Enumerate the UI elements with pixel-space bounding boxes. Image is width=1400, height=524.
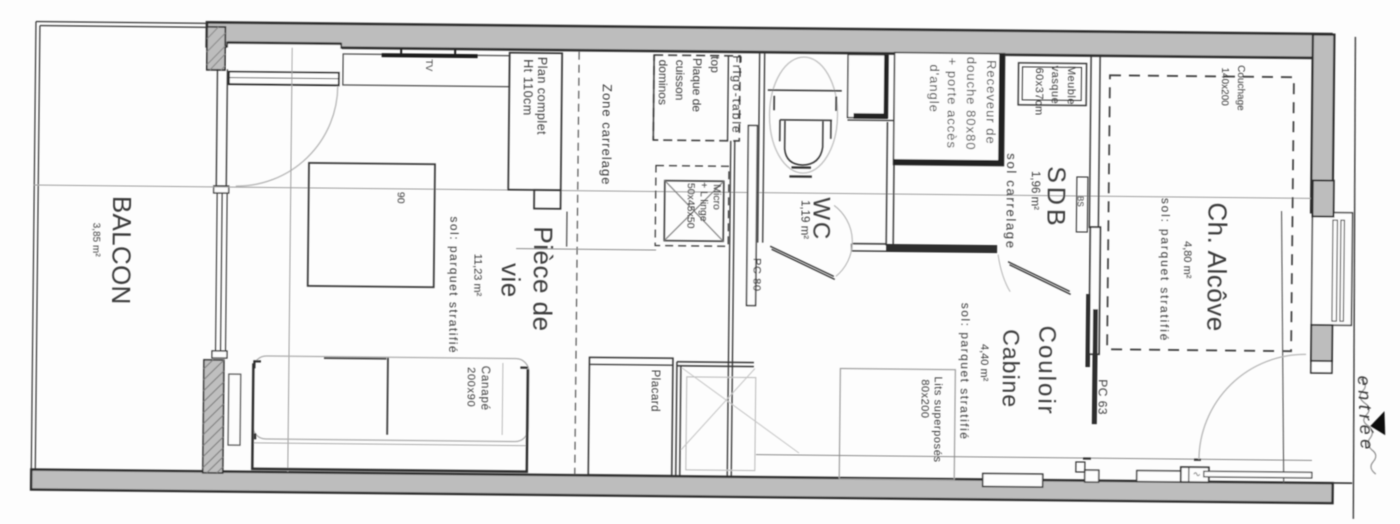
svg-text:+ L linge: + L linge — [697, 182, 709, 222]
svg-text:top: top — [708, 56, 722, 73]
svg-text:vasque: vasque — [1049, 66, 1061, 105]
svg-text:Plan complet: Plan complet — [534, 57, 549, 135]
svg-text:Cabine: Cabine — [997, 329, 1024, 408]
svg-text:sol: parquet stratifié: sol: parquet stratifié — [957, 303, 972, 441]
svg-text:Zone carrelage: Zone carrelage — [599, 84, 615, 186]
svg-text:Couchage: Couchage — [1235, 65, 1246, 111]
svg-text:SDB: SDB — [1041, 166, 1070, 230]
svg-text:+ porte accès: + porte accès — [944, 58, 960, 150]
svg-text:Ch. Alcôve: Ch. Alcôve — [1201, 202, 1232, 332]
svg-text:dominos: dominos — [656, 60, 670, 106]
svg-text:80x200: 80x200 — [918, 379, 930, 418]
svg-text:50x45x50: 50x45x50 — [684, 183, 696, 229]
svg-text:90: 90 — [395, 192, 407, 204]
svg-text:sol: parquet stratifié: sol: parquet stratifié — [1157, 198, 1173, 342]
svg-text:cuisson: cuisson — [673, 60, 687, 101]
svg-text:3,85 m²: 3,85 m² — [90, 223, 101, 258]
svg-text:4,40 m²: 4,40 m² — [978, 344, 990, 382]
svg-text:sol carrelage: sol carrelage — [1003, 153, 1019, 250]
svg-text:60x37cm: 60x37cm — [1033, 67, 1046, 115]
svg-text:sol: parquet stratifié: sol: parquet stratifié — [446, 216, 461, 354]
svg-text:Canapé: Canapé — [478, 366, 490, 411]
svg-text:Lits superposés: Lits superposés — [931, 376, 944, 462]
svg-text:200x90: 200x90 — [464, 367, 476, 407]
svg-text:douche 80x80: douche 80x80 — [963, 57, 979, 151]
svg-text:Ht 110cm: Ht 110cm — [521, 59, 536, 116]
svg-text:Placard: Placard — [648, 369, 660, 412]
svg-text:BALCON: BALCON — [106, 196, 137, 305]
svg-text:Receveur de: Receveur de — [983, 60, 999, 145]
svg-text:Micro: Micro — [711, 184, 723, 210]
svg-text:Frigo-table: Frigo-table — [729, 55, 744, 135]
svg-text:Couloir: Couloir — [1032, 325, 1060, 415]
svg-text:BS: BS — [1076, 196, 1085, 207]
svg-text:Pièce de: Pièce de — [527, 226, 558, 331]
svg-text:PC 63: PC 63 — [1095, 379, 1109, 415]
svg-text:11,23 m²: 11,23 m² — [471, 254, 483, 297]
svg-text:vie: vie — [496, 263, 526, 298]
svg-text:Meuble: Meuble — [1065, 66, 1077, 105]
svg-text:d'angle: d'angle — [927, 64, 943, 113]
svg-text:140x200: 140x200 — [1219, 67, 1230, 106]
svg-text:TV: TV — [423, 59, 434, 72]
svg-text:1,19 m²: 1,19 m² — [798, 200, 810, 239]
svg-text:4,80 m²: 4,80 m² — [1181, 241, 1193, 279]
svg-text:1,96 m²: 1,96 m² — [1029, 171, 1041, 210]
svg-text:PC 80: PC 80 — [750, 258, 762, 292]
svg-text:Plaque de: Plaque de — [690, 58, 705, 113]
